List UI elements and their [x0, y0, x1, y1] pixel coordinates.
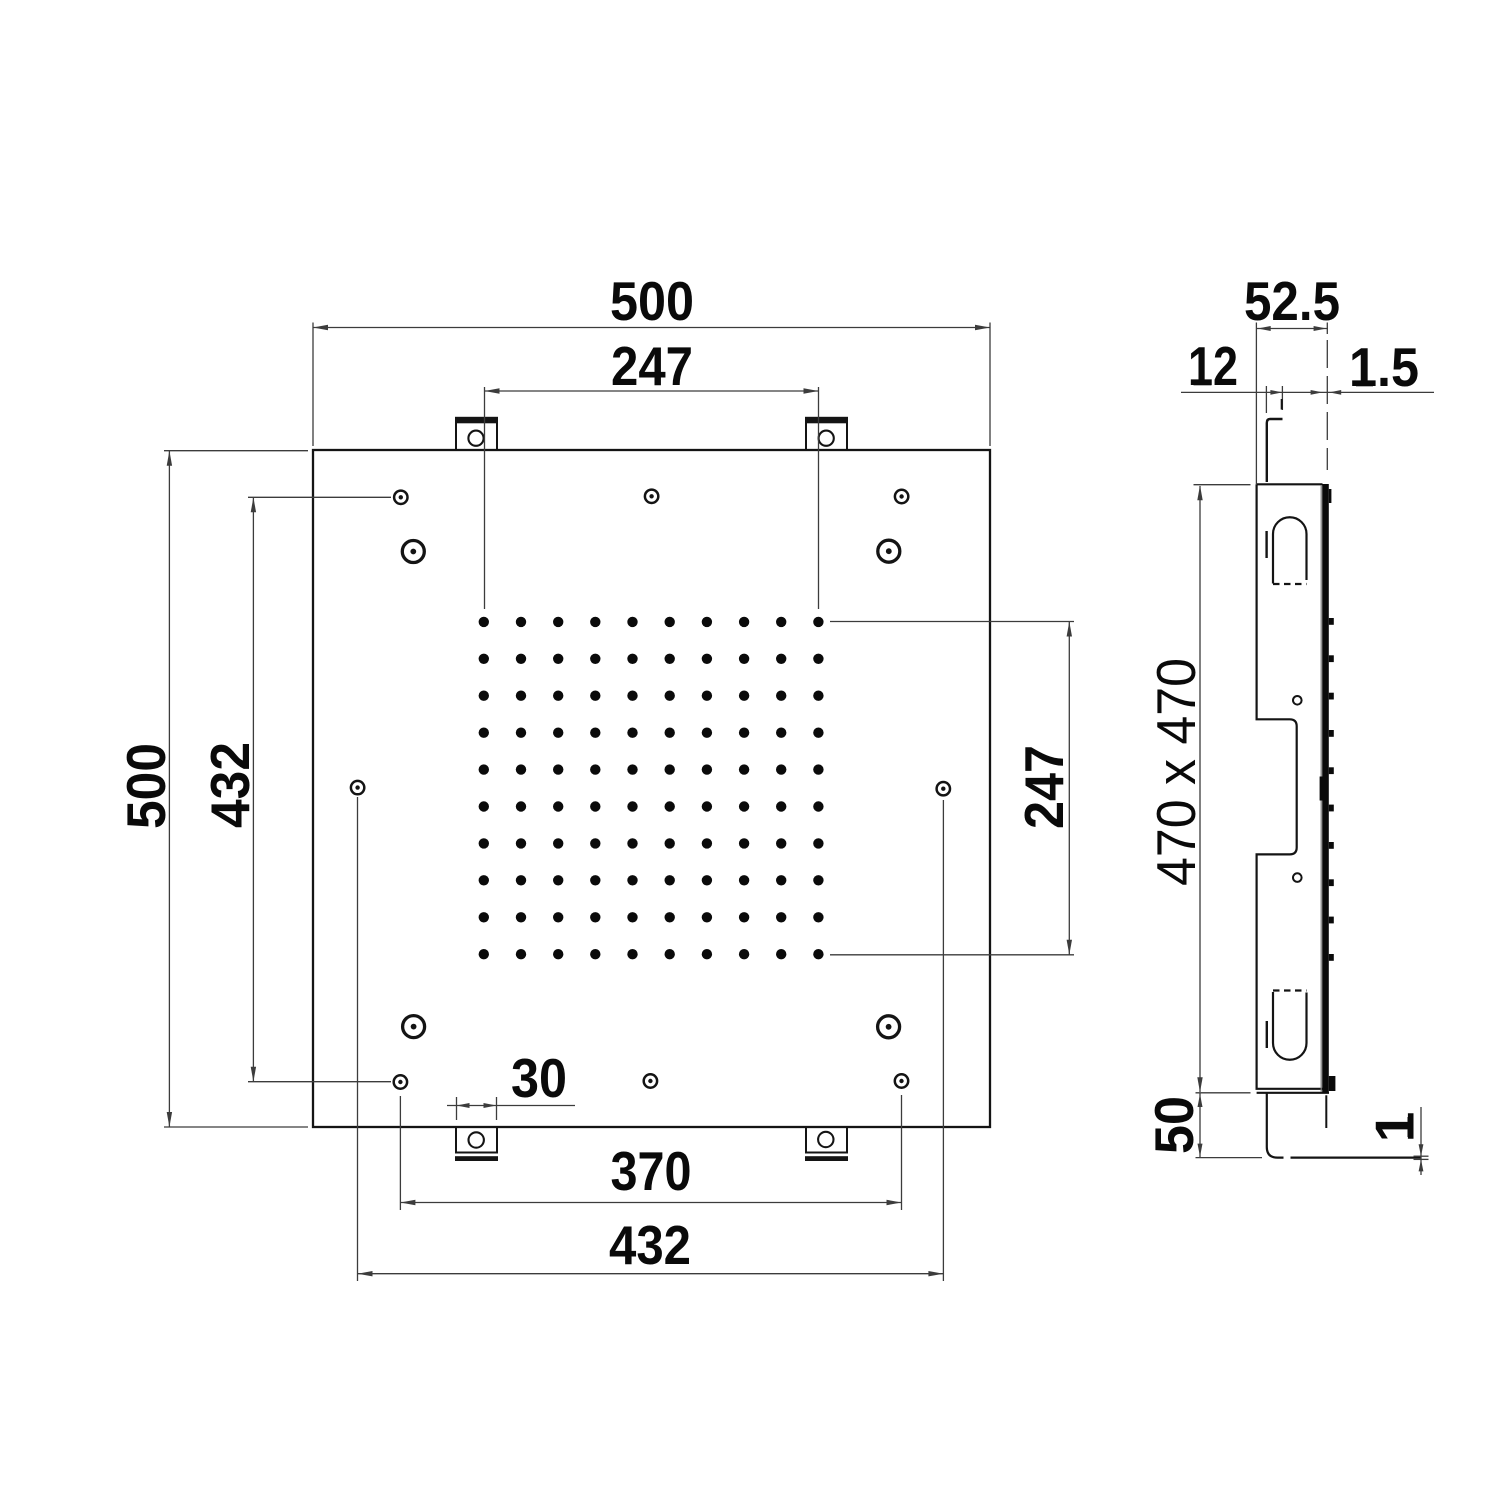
- svg-text:247: 247: [1013, 745, 1075, 829]
- svg-text:370: 370: [611, 1140, 692, 1202]
- svg-text:432: 432: [609, 1214, 691, 1276]
- svg-text:247: 247: [611, 335, 693, 397]
- svg-text:500: 500: [115, 743, 177, 829]
- svg-text:432: 432: [199, 742, 261, 828]
- svg-text:50: 50: [1143, 1096, 1205, 1154]
- svg-text:52.5: 52.5: [1244, 270, 1340, 332]
- svg-text:470 x 470: 470 x 470: [1145, 658, 1207, 886]
- svg-text:30: 30: [511, 1047, 567, 1109]
- svg-text:500: 500: [610, 270, 694, 332]
- svg-text:1: 1: [1364, 1112, 1426, 1143]
- svg-text:12: 12: [1188, 335, 1238, 397]
- svg-text:1.5: 1.5: [1349, 336, 1419, 398]
